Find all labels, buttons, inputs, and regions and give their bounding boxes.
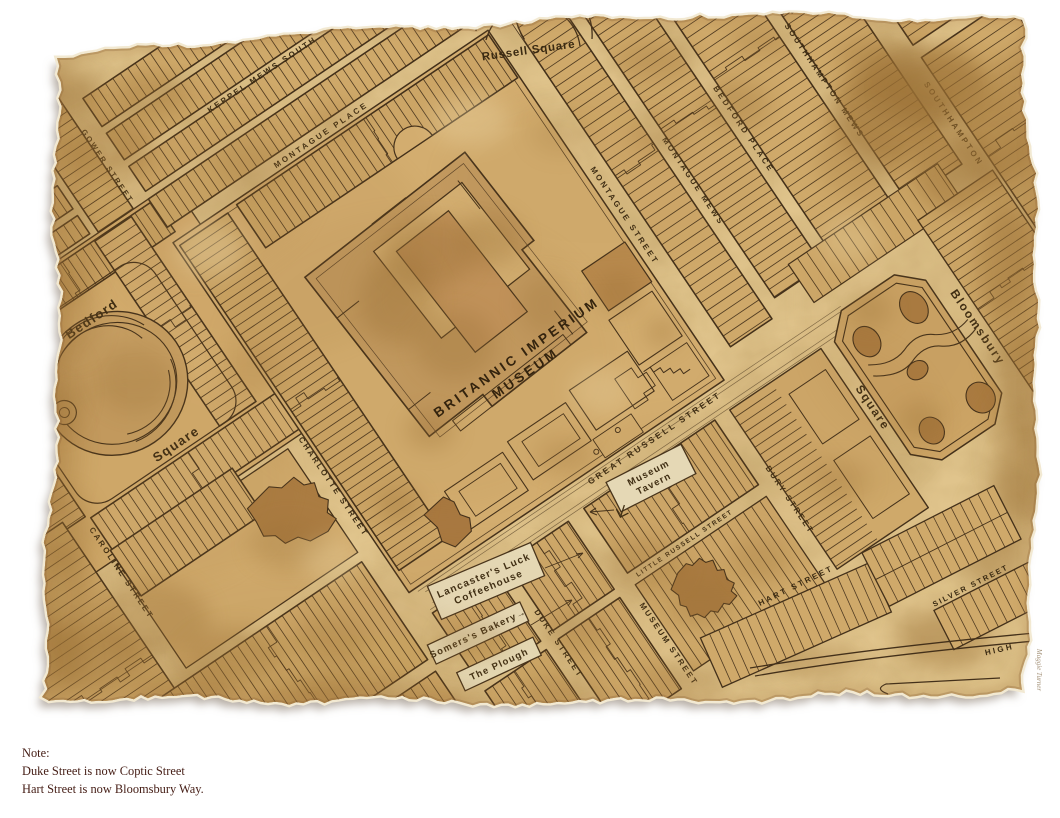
svg-text:Note:: Note: xyxy=(22,746,50,760)
svg-text:Duke Street is now Coptic Stre: Duke Street is now Coptic Street xyxy=(22,764,185,778)
svg-text:Hart Street is now Bloomsbury: Hart Street is now Bloomsbury Way. xyxy=(22,782,204,796)
svg-text:Maggie Turner: Maggie Turner xyxy=(1035,648,1043,691)
